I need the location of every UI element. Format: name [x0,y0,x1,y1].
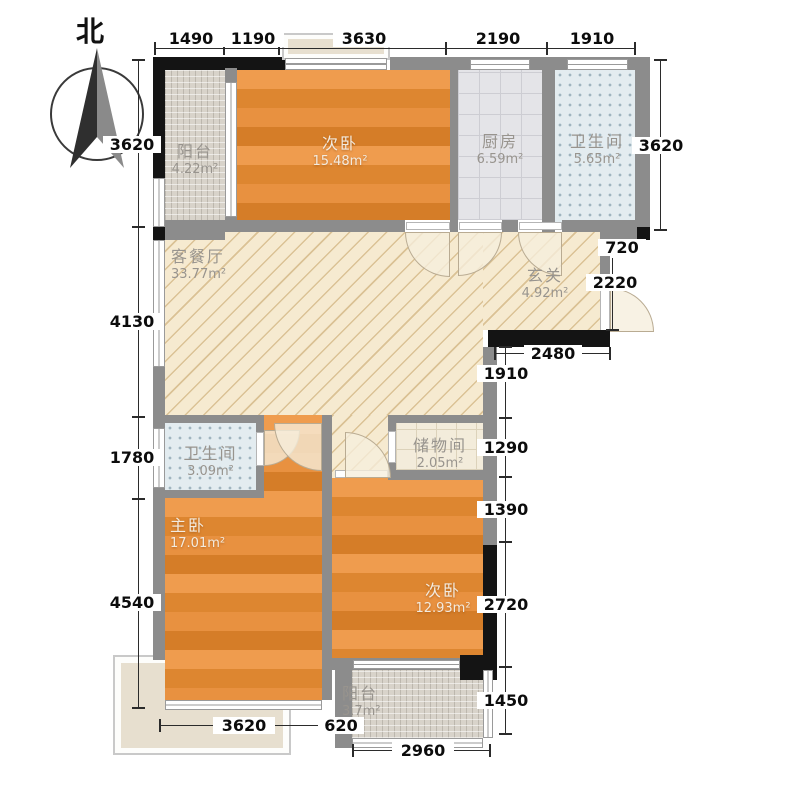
wall-top-black [153,57,285,70]
dim-right-3620: 3620 [632,137,690,154]
window-balcony-left [153,178,165,227]
tick [606,329,619,331]
tick [499,666,512,668]
dim-line-2220 [612,258,613,330]
room-label-bedroom-bottom: 次卧 12.93m² [400,577,486,616]
wall-band-2 [450,220,458,232]
room-label-living: 客餐厅 33.77m² [171,243,281,282]
dim-left-2: 4130 [103,313,161,330]
dim-inner-2720: 2720 [477,596,535,613]
tick [132,498,145,500]
dim-top-1: 1490 [160,30,222,47]
tick [499,733,512,735]
dim-left-4: 4540 [103,594,161,611]
dim-inner-1390: 1390 [477,501,535,518]
tick [494,347,496,360]
window-bath-top [567,59,628,70]
dim-left-3: 1780 [103,449,161,466]
dim-top-3: 3630 [333,30,395,47]
room-label-bath-mid: 卫生间 3.09m² [168,440,253,479]
dim-bottom-620: 620 [318,717,364,734]
tick [634,42,636,55]
window-living-left [153,240,165,367]
wall-master-right [322,415,332,700]
entry-door-leaf [600,288,610,332]
dim-left-1: 3620 [103,136,161,153]
tick [499,476,512,478]
room-label-bedroom-top: 次卧 15.48m² [298,130,382,169]
threshold-bath-top-door [519,222,562,230]
tick [132,59,145,61]
threshold-kitchen-door [459,222,502,230]
room-label-balcony-bottom: 阳台 3.7m² [342,680,406,719]
tick [132,226,145,228]
storage-door [388,431,396,463]
floor-plan: 北 [0,0,800,800]
tick [654,59,667,61]
tick [132,416,145,418]
tick [546,42,548,55]
tick [445,42,447,55]
dim-2480: 2480 [524,345,582,362]
room-label-bath-top: 卫生间 5.65m² [555,128,639,167]
tick [654,229,667,231]
tick [609,347,611,360]
wall-band-3 [502,220,518,232]
wall-bedroom-kitchen [450,68,458,232]
dim-inner-1450: 1450 [477,692,535,709]
tick [499,417,512,419]
tick [499,346,512,348]
wall-storage-bottom [388,470,497,480]
window-bedroom-top-bay [285,58,387,70]
dim-line-top [155,48,635,49]
dim-top-4: 2190 [467,30,529,47]
wall-bath-mid-bottom [165,490,264,498]
wall-kitchen-bath [542,68,555,232]
wall-mid-left [153,415,264,423]
dim-top-2: 1190 [222,30,284,47]
wall-band-1 [165,220,405,232]
threshold-bedroom-top-door [406,222,450,230]
door-arc-entry [610,288,654,332]
tick [352,744,354,757]
dim-bottom-3620: 3620 [213,717,275,734]
tick [489,744,491,757]
wall-left-4 [153,488,165,660]
wall-storage-top [388,415,483,423]
tick [159,719,161,732]
tick [154,42,156,55]
dim-720: 720 [598,239,646,256]
window-master-bottom [165,700,322,710]
dim-inner-1290: 1290 [477,439,535,456]
tick [132,707,145,709]
room-label-balcony-top: 阳台 4.22m² [163,138,227,177]
dim-top-5: 1910 [561,30,623,47]
floor-bedroom-bottom [332,478,483,658]
wall-left-black-2 [153,227,165,240]
wall-lower-right [483,415,497,545]
room-label-entry: 玄关 4.92m² [505,262,585,301]
window-bedroom-bottom [353,660,460,669]
tick [499,541,512,543]
window-kitchen-top [470,59,530,70]
room-label-kitchen: 厨房 6.59m² [460,128,540,167]
room-label-storage: 储物间 2.05m² [399,432,481,471]
dim-inner-1910: 1910 [477,365,535,382]
dim-bottom-2960: 2960 [392,742,454,759]
dim-2220: 2220 [586,274,644,291]
room-label-master: 主卧 17.01m² [170,512,260,551]
bath-mid-door [256,432,264,466]
